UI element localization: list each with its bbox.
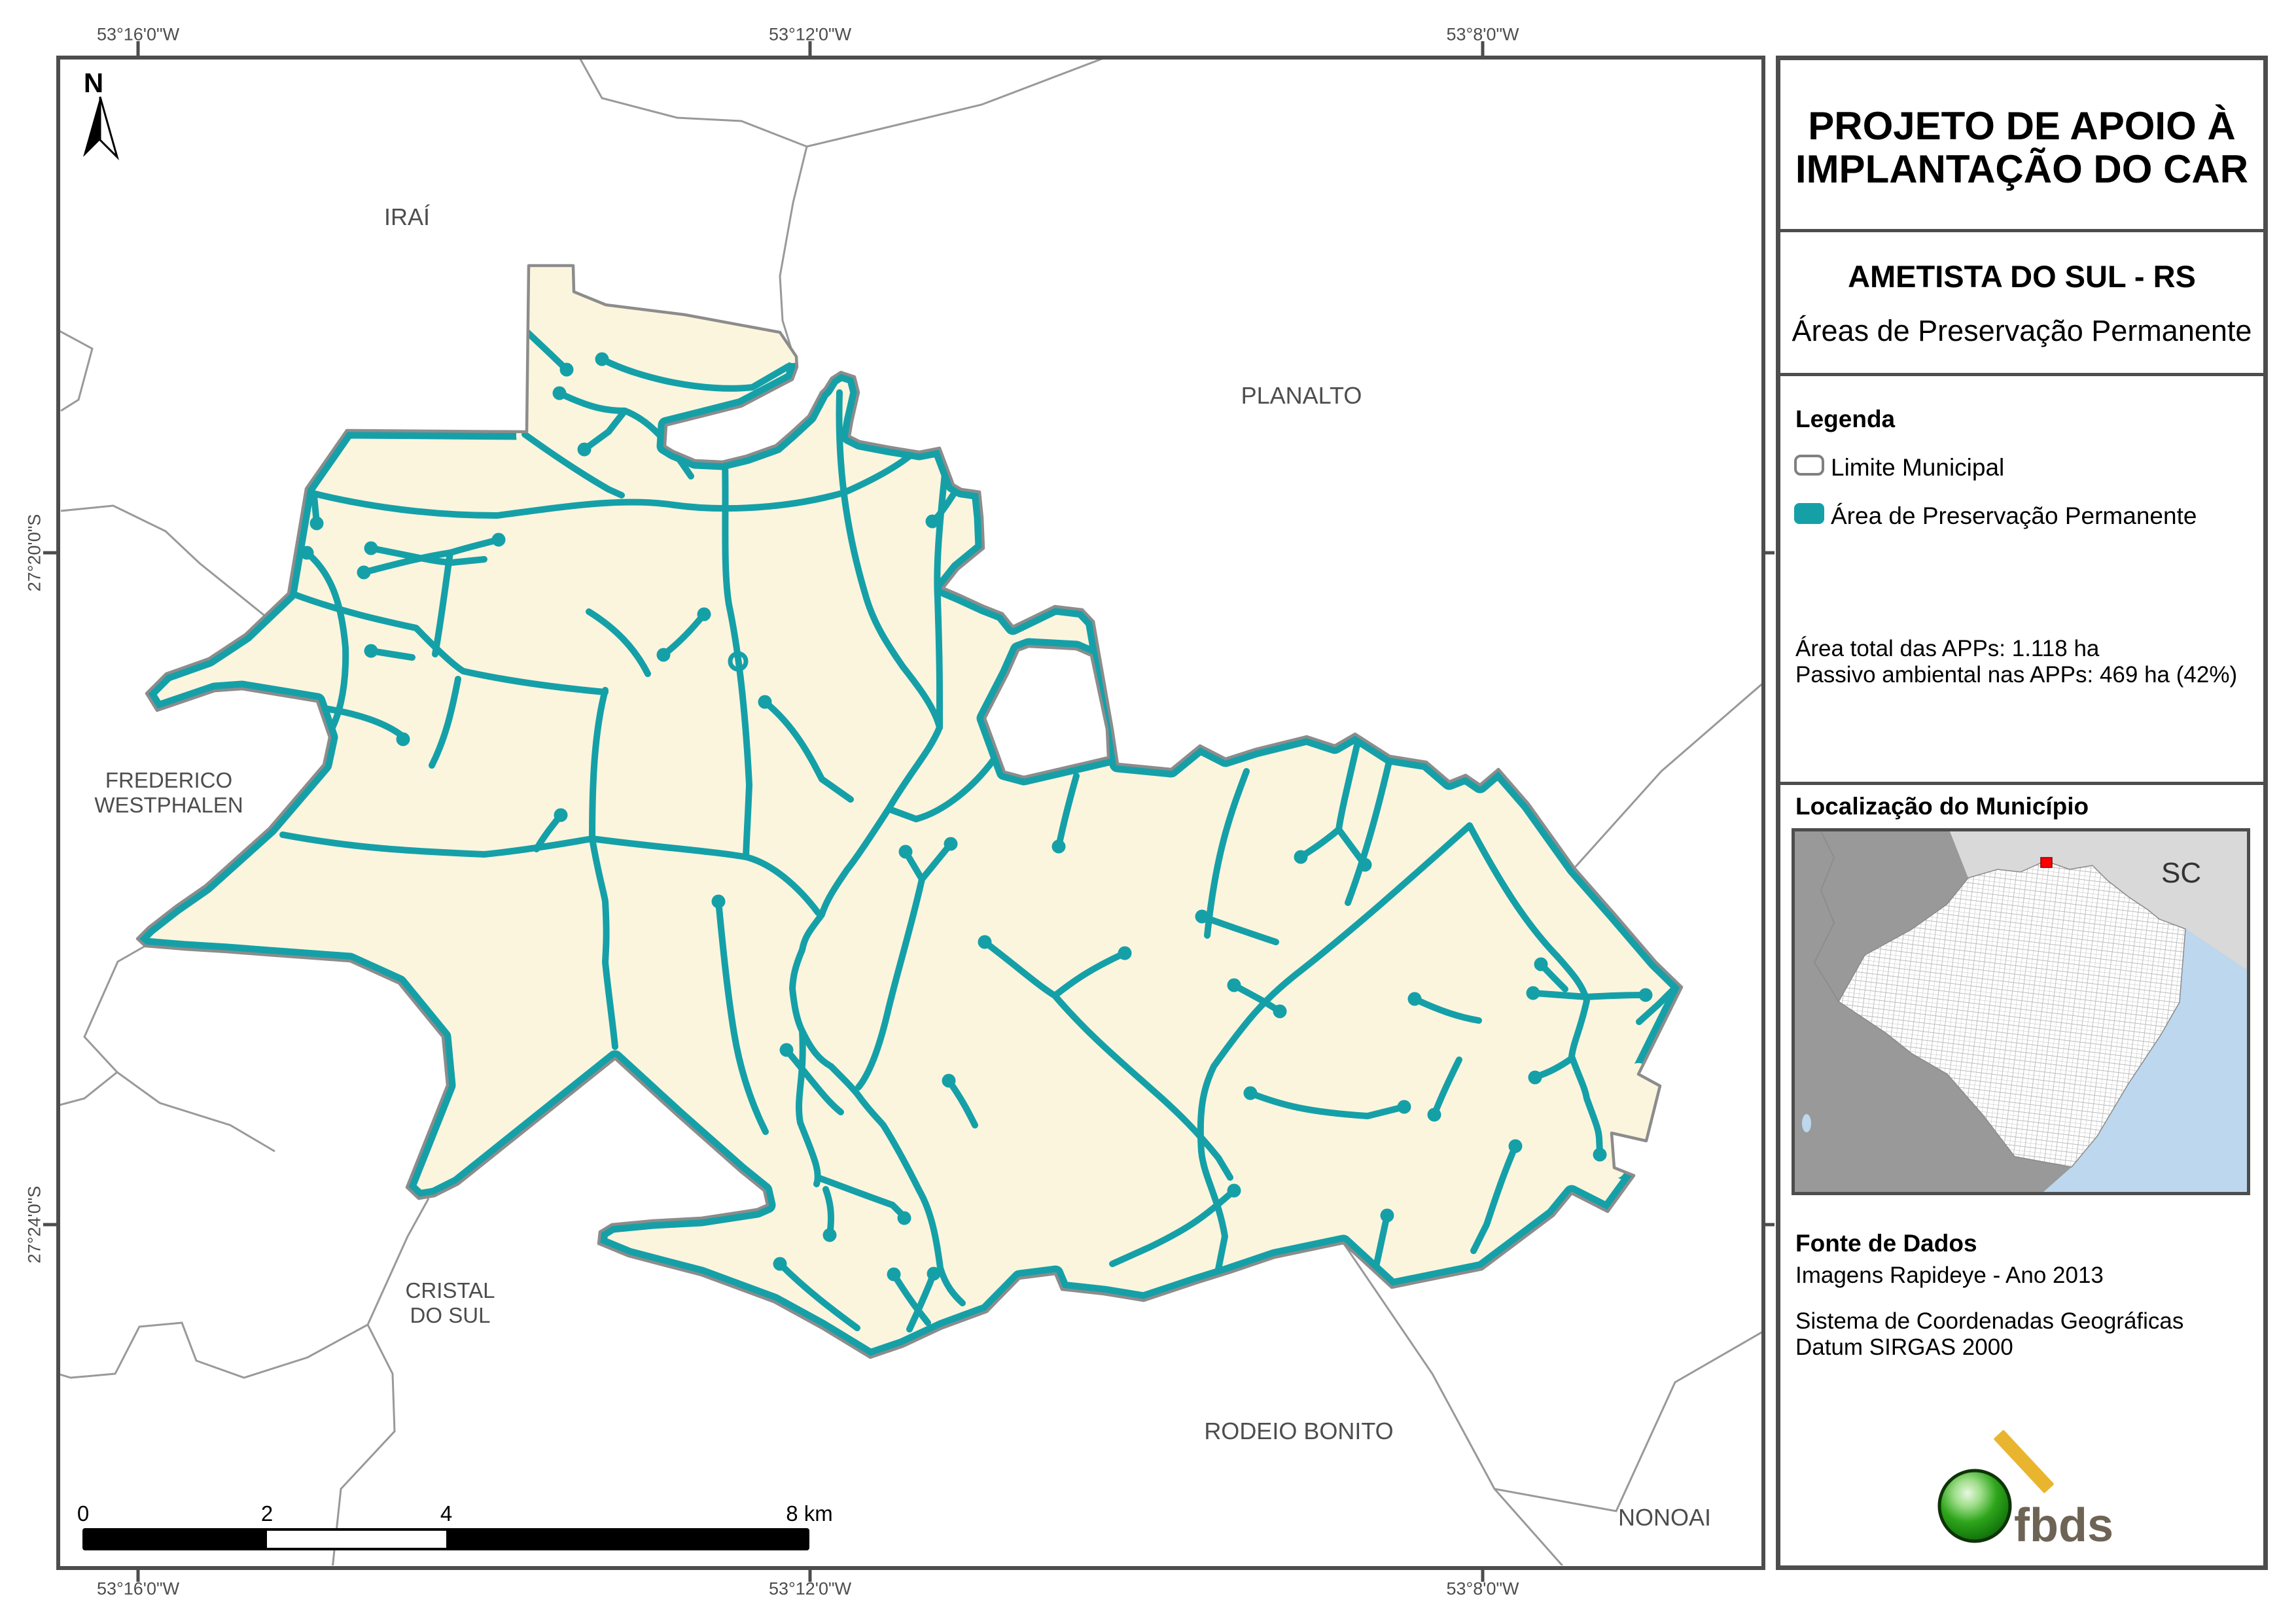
svg-text:SC: SC — [2161, 857, 2201, 889]
svg-text:fbds: fbds — [2014, 1499, 2113, 1552]
